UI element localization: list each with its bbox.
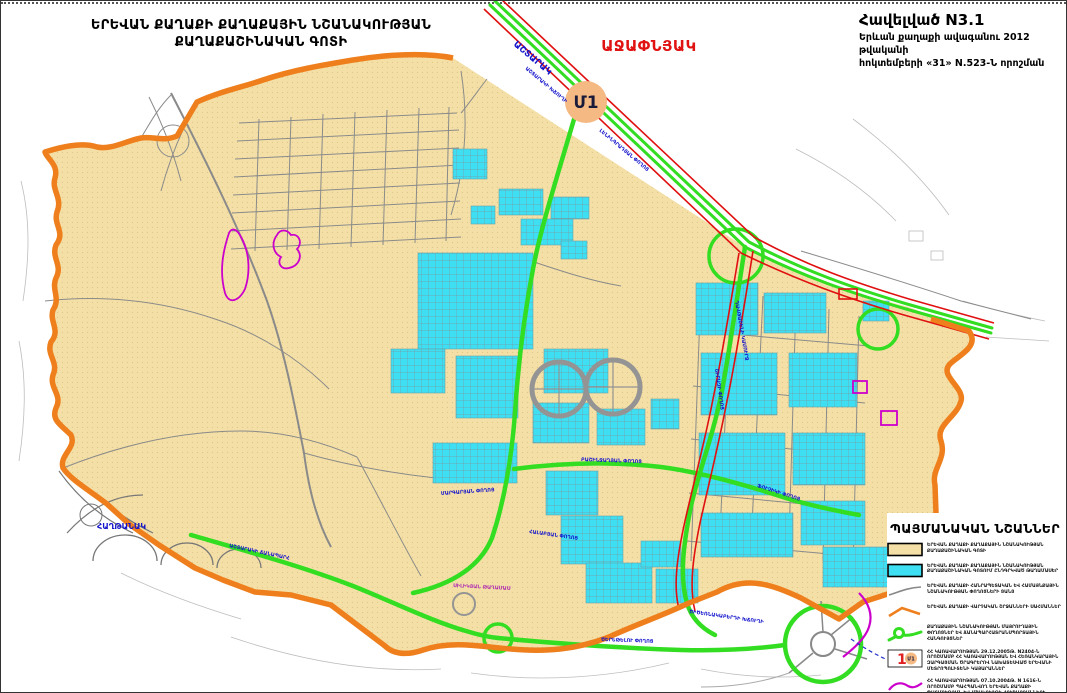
orange-border-swatch [887,604,927,620]
page-title-line1: ԵՐԵՎԱՆ ՔԱՂԱՔԻ ՔԱՂԱՔԱՅԻՆ ՆՇԱՆԱԿՈՒԹՅԱՆ [56,17,466,34]
legend-item: 1 Մ1 ՀՀ ԿԱՌԱՎԱՐՈՒԹՅԱՆ 29.12.2005Թ. N2404… [887,649,1063,674]
legend-item: ՀՀ ԿԱՌԱՎԱՐՈՒԹՅԱՆ 07.10.2004Թ. N 1616-Ն Ո… [887,678,1063,693]
green-road-swatch [887,624,927,644]
legend: ՊԱՅՄԱՆԱԿԱՆ ՆՇԱՆՆԵՐ ԵՐԵՎԱՆ ՔԱՂԱՔԻ ՔԱՂԱՔԱՅ… [887,513,1063,691]
map-sheet: Մ1 ԱՇՏԱՐԱԿԱՇՏԱՐԱԿԻ ԽՃՈՒՂԻԼԵՆԻՆԳՐԱԴՅԱՆ ՓՈ… [0,0,1067,693]
appendix-title: Հավելված N3.1 [859,11,1059,29]
metro-station-marker: Մ1 [565,81,607,123]
magenta-line-swatch [887,678,927,693]
tan-zone-swatch [887,542,927,558]
page-title-line2: ՔԱՂԱՔԱՇԻՆԱԿԱՆ ԳՈՏԻ [56,34,466,51]
legend-item-label: ԵՐԵՎԱՆ ՔԱՂԱՔԻ ՀԱՆՐԱՊԵՏԱԿԱՆ ԵՎ ՀԱՄԱՅՆՔԱՅԻ… [927,583,1063,596]
page-title: ԵՐԵՎԱՆ ՔԱՂԱՔԻ ՔԱՂԱՔԱՅԻՆ ՆՇԱՆԱԿՈՒԹՅԱՆ ՔԱՂ… [56,17,466,51]
legend-item: ԵՐԵՎԱՆ ՔԱՂԱՔԻ ՀԱՆՐԱՊԵՏԱԿԱՆ ԵՎ ՀԱՄԱՅՆՔԱՅԻ… [887,583,1063,599]
legend-item-label: ԵՐԵՎԱՆ ՔԱՂԱՔԻ ՔԱՂԱՔԱՅԻՆ ՆՇԱՆԱԿՈՒԹՅԱՆ ՔԱՂ… [927,542,1063,555]
legend-item-label: ՀՀ ԿԱՌԱՎԱՐՈՒԹՅԱՆ 07.10.2004Թ. N 1616-Ն Ո… [927,678,1063,693]
legend-item-label: ՔԱՂԱՔԱՅԻՆ ՆՇԱՆԱԿՈՒԹՅԱՆ ՄԱՅՐՈՒՂԱՅԻՆ ՓՈՂՈՑ… [927,624,1063,643]
legend-item-label: ՀՀ ԿԱՌԱՎԱՐՈՒԹՅԱՆ 29.12.2005Թ. N2404-Ն ՈՐ… [927,649,1063,674]
appendix-block: Հավելված N3.1 Երևան քաղաքի ավագանու 2012… [859,11,1059,70]
metro-station-swatch: 1 Մ1 [887,649,927,669]
svg-text:Մ1: Մ1 [907,656,915,662]
legend-item: ԵՐԵՎԱՆ ՔԱՂԱՔԻ ՔԱՂԱՔԱՅԻՆ ՆՇԱՆԱԿՈՒԹՅԱՆ ՔԱՂ… [887,563,1063,579]
district-name-label: ԱՋԱՓՆՅԱԿ [589,37,709,55]
legend-item: ՔԱՂԱՔԱՅԻՆ ՆՇԱՆԱԿՈՒԹՅԱՆ ՄԱՅՐՈՒՂԱՅԻՆ ՓՈՂՈՑ… [887,624,1063,644]
legend-item-label: ԵՐԵՎԱՆ ՔԱՂԱՔԻ ՔԱՂԱՔԱՅԻՆ ՆՇԱՆԱԿՈՒԹՅԱՆ ՔԱՂ… [927,563,1063,576]
svg-text:Մ1: Մ1 [573,93,598,113]
street-label: ԾԵՐԵԹԵԼՈՒ ՓՈՂՈՑ [601,637,654,645]
legend-item: ԵՐԵՎԱՆ ՔԱՂԱՔԻ ՎԱՐՉԱԿԱՆ ՇՐՋԱՆՆԵՐԻ ՍԱՀՄԱՆՆ… [887,604,1063,620]
appendix-line2: հոկտեմբերի «31» N.523-Ն որոշման [859,57,1059,70]
legend-item: ԵՐԵՎԱՆ ՔԱՂԱՔԻ ՔԱՂԱՔԱՅԻՆ ՆՇԱՆԱԿՈՒԹՅԱՆ ՔԱՂ… [887,542,1063,558]
legend-item-label: ԵՐԵՎԱՆ ՔԱՂԱՔԻ ՎԱՐՉԱԿԱՆ ՇՐՋԱՆՆԵՐԻ ՍԱՀՄԱՆՆ… [927,604,1061,611]
appendix-line1: Երևան քաղաքի ավագանու 2012 թվականի [859,31,1059,57]
cyan-zone-swatch [887,563,927,579]
street-label: ՀԱՂԹԱՆԱԿ [97,522,146,531]
gray-street-swatch [887,583,927,599]
legend-title: ՊԱՅՄԱՆԱԿԱՆ ՆՇԱՆՆԵՐ [887,521,1063,536]
